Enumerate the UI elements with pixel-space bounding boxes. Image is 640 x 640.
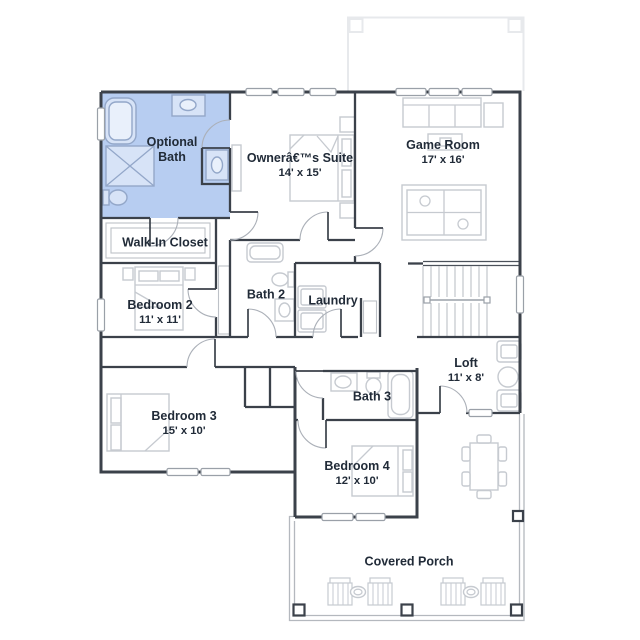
room-label-owners-suite: Ownerâ€™s Suite 14' x 15' — [247, 151, 353, 182]
porch-chair-icon — [481, 578, 505, 605]
window-icon — [278, 89, 304, 96]
game-room-furniture — [402, 98, 503, 240]
round-table-icon — [498, 367, 518, 387]
nightstand-icon — [340, 117, 355, 132]
room-label-covered-porch: Covered Porch — [365, 554, 454, 569]
porch-post — [294, 605, 305, 616]
window-icon — [356, 514, 385, 521]
floor-plan: Optional Bath Walk-In Closet Ownerâ€™s S… — [0, 0, 640, 640]
porch-table-icon — [464, 587, 479, 598]
sofa-icon — [403, 98, 481, 127]
window-icon — [462, 89, 492, 96]
dining-table-icon — [470, 443, 498, 490]
window-icon — [429, 89, 459, 96]
window-icon — [98, 299, 105, 331]
floor-plan-drawing — [0, 0, 640, 640]
porch-post — [513, 511, 523, 521]
window-icon — [310, 89, 336, 96]
nightstand-icon — [185, 268, 195, 280]
toilet-icon — [103, 190, 109, 205]
porch-table-icon — [351, 587, 366, 598]
staircase — [408, 262, 520, 337]
porch-post — [511, 605, 522, 616]
room-label-bath-2: Bath 2 — [247, 287, 285, 302]
room-label-bedroom-4: Bedroom 4 12' x 10' — [324, 459, 389, 490]
toilet-icon — [367, 372, 380, 378]
laundry-closet-shelf — [364, 301, 377, 333]
upper-deck-outline — [348, 18, 524, 92]
porch-post — [402, 605, 413, 616]
window-icon — [469, 410, 492, 417]
window-icon — [98, 108, 105, 140]
room-label-bedroom-2: Bedroom 2 11' x 11' — [127, 298, 192, 329]
nightstand-icon — [340, 203, 355, 218]
porch-chair-icon — [441, 578, 465, 605]
dresser-icon — [232, 145, 241, 191]
window-icon — [246, 89, 272, 96]
window-icon — [167, 469, 198, 476]
side-table-icon — [484, 103, 503, 127]
porch-chair-icon — [328, 578, 352, 605]
nightstand-icon — [123, 268, 133, 280]
toilet-icon — [288, 272, 294, 287]
porch-chair-icon — [368, 578, 392, 605]
room-label-walk-in-closet: Walk-In Closet — [122, 235, 208, 250]
room-label-bedroom-3: Bedroom 3 15' x 10' — [151, 409, 216, 440]
room-label-optional-bath: Optional Bath — [139, 135, 205, 166]
window-icon — [322, 514, 353, 521]
window-icon — [396, 89, 426, 96]
loft-furniture — [497, 341, 521, 411]
room-label-loft: Loft 11' x 8' — [448, 356, 484, 387]
window-icon — [201, 469, 230, 476]
window-icon — [517, 276, 524, 313]
room-label-laundry: Laundry — [308, 293, 357, 308]
room-label-bath-3: Bath 3 — [353, 389, 391, 404]
room-label-game-room: Game Room 17' x 16' — [406, 138, 480, 169]
